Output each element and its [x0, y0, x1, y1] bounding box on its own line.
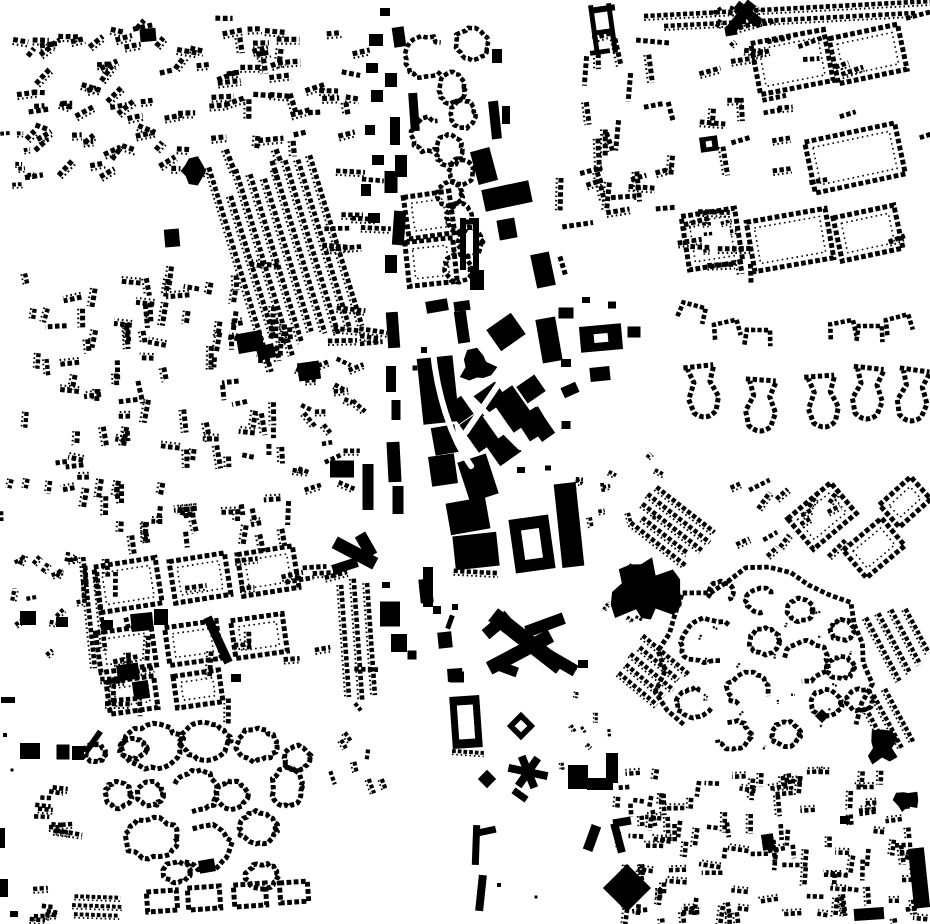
district-far-left-bottom-marks [0, 697, 18, 917]
district-midright-court-complex [579, 323, 623, 353]
district-bl-loop-clusters [85, 722, 311, 889]
district-se-of-centre-marks [570, 453, 665, 528]
district-tr-cross-slabs [724, 0, 763, 36]
district-tc-ladder-building [588, 3, 618, 56]
district-br-horseshoe-loops [655, 567, 874, 749]
district-br-west-diag-rows [628, 487, 714, 569]
district-bl-nw-hooks [12, 552, 89, 658]
district-midleft-terrace-grid [45, 260, 290, 554]
district-bl-upper-perimeter-blocks [94, 546, 299, 714]
district-nw-estate-east [209, 18, 370, 181]
district-br-sw-diag-rows [616, 636, 689, 708]
district-corridor-perimeter-blocks [403, 191, 457, 286]
district-centre-south-teeth-row [454, 571, 499, 577]
district-bc-west-lower-rows [330, 703, 386, 794]
district-bl-west-curve-rows [79, 557, 105, 669]
district-bl-airplane-slabs [331, 532, 390, 588]
district-goblet-clusters [683, 365, 930, 432]
district-goblet-hooks [677, 300, 913, 347]
district-left-edge-marks [1, 274, 50, 522]
district-ne-blocks-fill-rows [756, 12, 930, 246]
figure-ground-map [0, 0, 930, 924]
district-bc-civic-solids [472, 753, 651, 912]
map-canvas [0, 0, 930, 924]
district-court-block-base-row [452, 751, 484, 757]
district-nw-estate-west [12, 20, 209, 181]
district-bc-west-column-rows [337, 579, 375, 702]
district-br-ne-diag-blocks [788, 477, 930, 578]
district-bl-bottom-blocks [146, 881, 308, 912]
district-br-east-col-rows [863, 609, 929, 683]
district-bc-mid-scatter [559, 665, 609, 771]
district-br-dot-sprinkles [675, 612, 864, 750]
district-bl-bottom-rows [72, 896, 122, 919]
district-star-building [508, 755, 549, 803]
district-ne-courtyard-square [681, 208, 743, 270]
district-midright-solids [559, 297, 641, 429]
district-centre-north-flank-solids [361, 8, 420, 273]
district-ne-small-court [699, 135, 719, 152]
district-town-centre-masses [413, 298, 585, 570]
district-ne-estate-combs [556, 22, 770, 285]
district-ne-perimeter-blocks [746, 24, 907, 271]
